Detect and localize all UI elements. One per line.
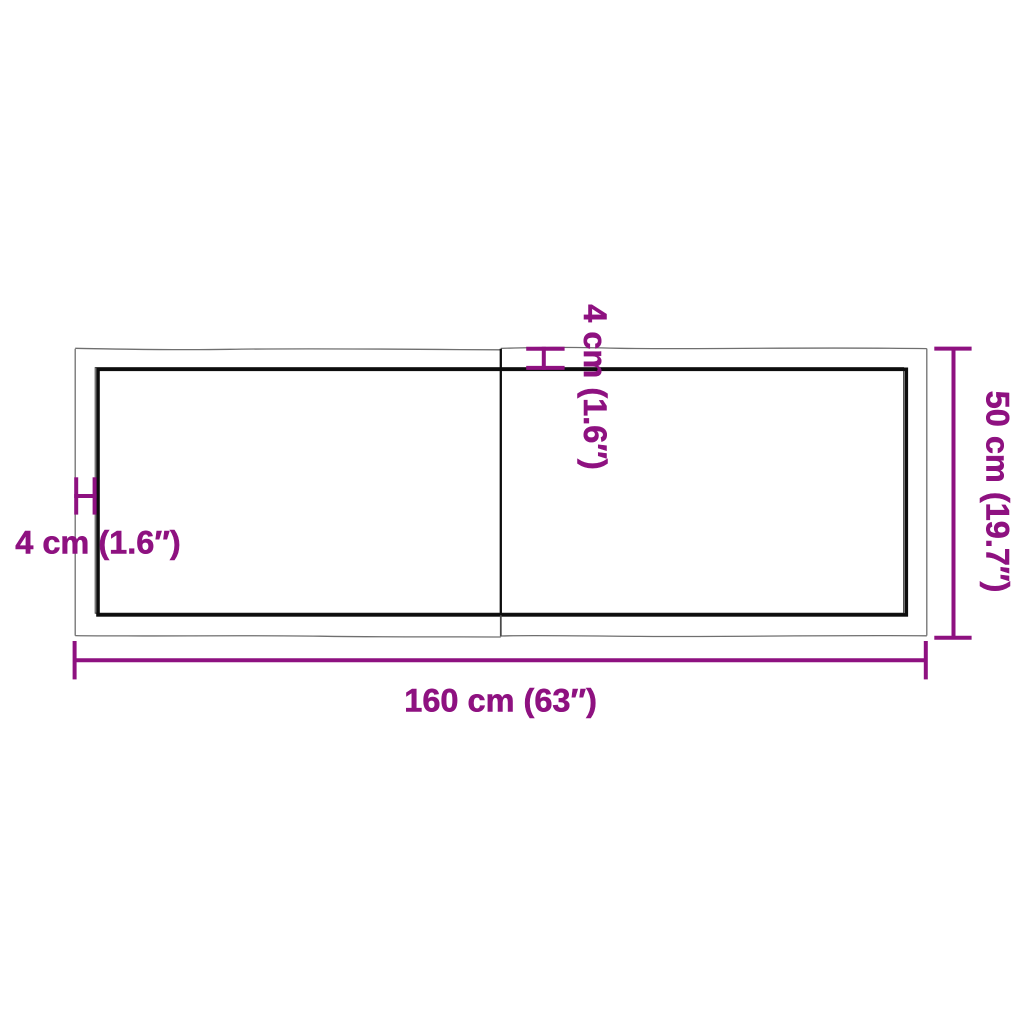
svg-text:50 cm (19.7″): 50 cm (19.7″) bbox=[980, 391, 1016, 593]
svg-text:4 cm (1.6″): 4 cm (1.6″) bbox=[577, 304, 613, 470]
svg-text:4 cm (1.6″): 4 cm (1.6″) bbox=[15, 524, 181, 560]
svg-text:160 cm (63″): 160 cm (63″) bbox=[404, 683, 597, 719]
